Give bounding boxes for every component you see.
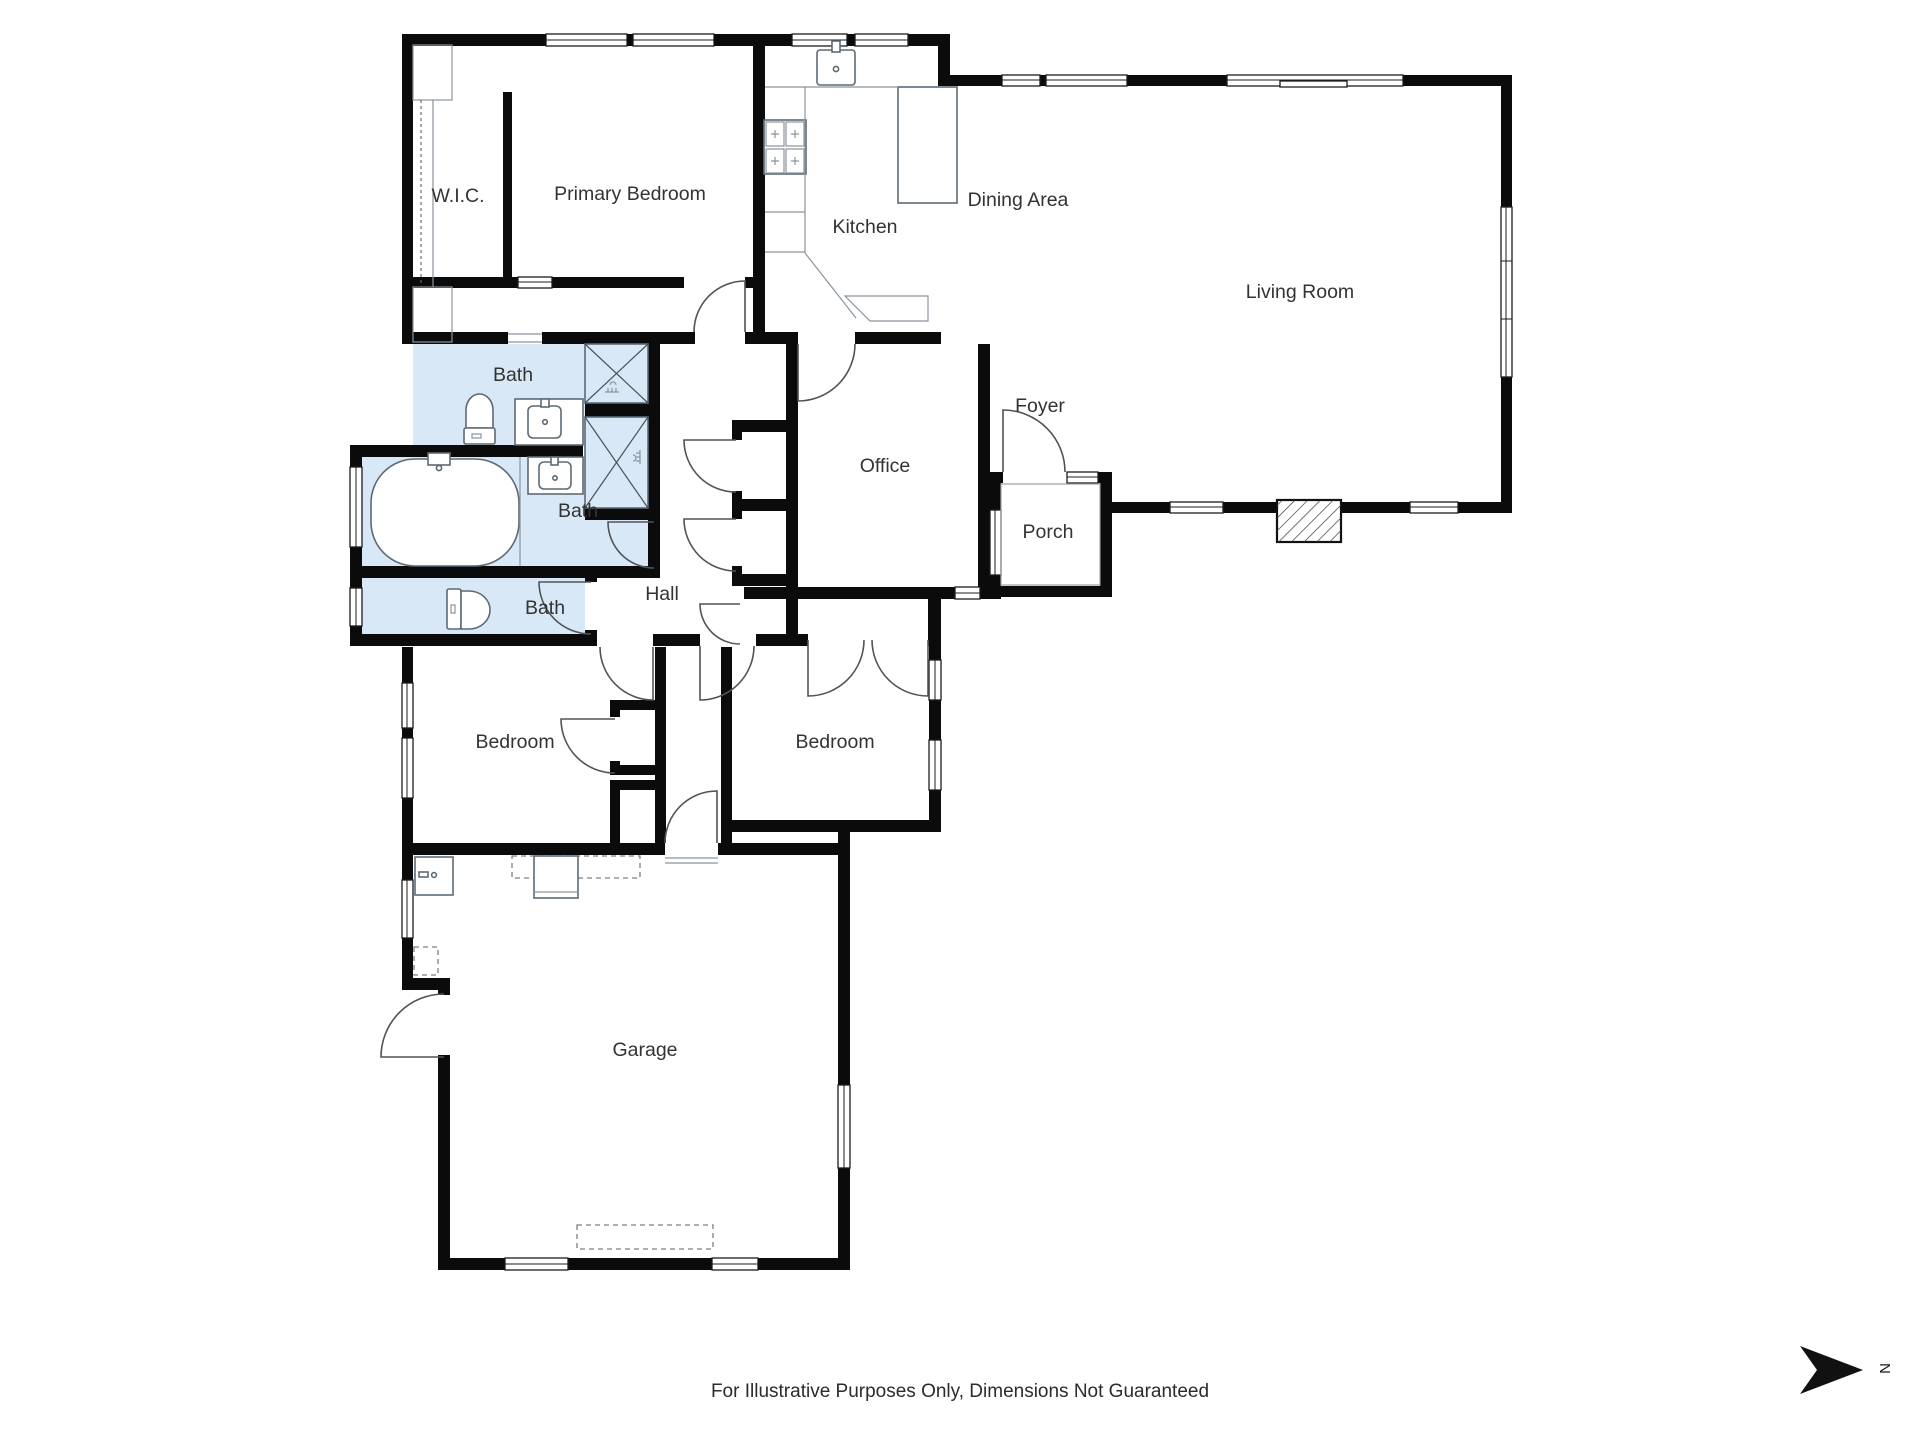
room-label-bath-main: Bath: [558, 500, 598, 522]
window: [990, 510, 1001, 575]
window: [505, 1258, 568, 1270]
room-label-porch: Porch: [1023, 521, 1074, 543]
window: [929, 740, 941, 790]
door-arc: [665, 791, 717, 843]
window: [838, 1085, 850, 1168]
room-label-bath-primary: Bath: [493, 364, 533, 386]
room-label-bedroom-left: Bedroom: [475, 731, 554, 753]
window: [955, 587, 980, 599]
window: [402, 738, 413, 798]
door-arc: [600, 647, 653, 700]
cased-opening: [508, 332, 542, 344]
window: [929, 660, 941, 700]
window: [350, 588, 362, 626]
window: [546, 34, 627, 46]
bathtub-icon: [371, 453, 520, 566]
room-label-bedroom-right: Bedroom: [795, 731, 874, 753]
room-label-bath-half: Bath: [525, 597, 565, 619]
walls: [350, 34, 1512, 1270]
disclaimer-text: For Illustrative Purposes Only, Dimensio…: [711, 1381, 1209, 1402]
floorplan-svg: W.I.C. Primary Bedroom Kitchen Dining Ar…: [0, 0, 1920, 1440]
room-label-office: Office: [860, 455, 911, 477]
vanity-sink-icon: [515, 399, 583, 445]
north-arrow-icon: N: [1800, 1346, 1893, 1394]
room-label-garage: Garage: [612, 1039, 677, 1061]
window: [712, 1258, 758, 1270]
door-arc: [700, 604, 740, 644]
window: [1046, 75, 1127, 86]
window: [633, 34, 714, 46]
utility-sink-icon: [415, 857, 453, 895]
room-label-living-room: Living Room: [1246, 281, 1354, 303]
window: [518, 277, 552, 288]
fireplace-icon: [1277, 500, 1341, 542]
water-heater-icon: [512, 856, 640, 898]
window: [350, 467, 362, 547]
room-label-primary-bedroom: Primary Bedroom: [554, 183, 706, 205]
wardrobe-partition: [503, 92, 512, 277]
door-arc: [694, 281, 745, 332]
door-arc: [798, 344, 855, 401]
room-label-kitchen: Kitchen: [832, 216, 897, 238]
window: [402, 683, 413, 728]
vanity-sink-icon: [528, 457, 583, 494]
toilet-icon: [464, 394, 495, 444]
shower-icon: [585, 344, 648, 403]
door-arc: [872, 640, 928, 696]
refrigerator-icon: [898, 87, 957, 203]
shower-icon: [585, 417, 648, 508]
window: [1227, 75, 1403, 87]
compass-label: N: [1876, 1363, 1893, 1374]
door-arc: [684, 519, 736, 571]
garage-storage-dashed: [577, 1225, 713, 1249]
room-label-wic: W.I.C.: [431, 185, 484, 207]
window: [402, 880, 413, 938]
stove-icon: [764, 120, 806, 174]
window: [1002, 75, 1040, 86]
room-label-foyer: Foyer: [1015, 395, 1065, 417]
window: [1170, 502, 1223, 513]
kitchen-island: [845, 296, 928, 321]
room-label-dining-area: Dining Area: [968, 189, 1069, 211]
door-arc: [684, 440, 736, 492]
window: [1067, 472, 1098, 483]
door-arc: [381, 994, 444, 1057]
window: [1501, 207, 1512, 377]
garage-appliance-dashed: [414, 947, 438, 975]
door-arc: [561, 719, 615, 773]
room-label-hall: Hall: [645, 583, 679, 605]
door-arc: [1003, 410, 1065, 472]
kitchen-sink-icon: [817, 41, 855, 85]
window: [855, 34, 908, 46]
window: [1410, 502, 1458, 513]
floorplan-page: W.I.C. Primary Bedroom Kitchen Dining Ar…: [0, 0, 1920, 1440]
door-arc: [808, 640, 864, 696]
